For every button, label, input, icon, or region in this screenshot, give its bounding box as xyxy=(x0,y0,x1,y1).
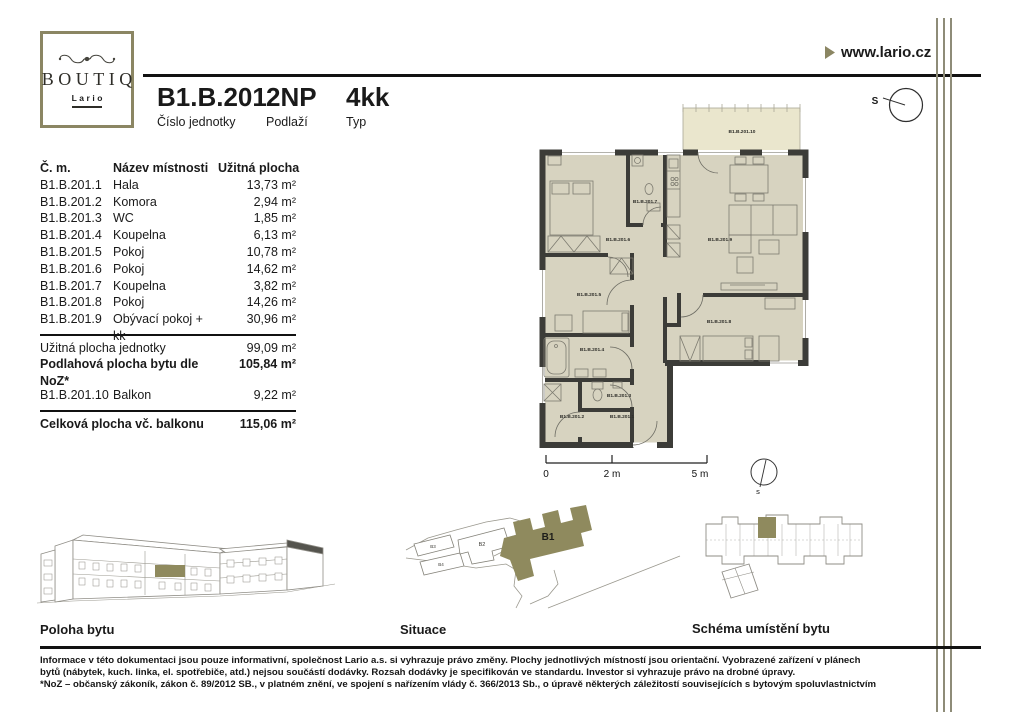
room-label-2: B1.B.201.2 xyxy=(560,414,585,420)
table-row: B1.B.201.8 Pokoj 14,26 m² xyxy=(40,294,296,311)
room-area: 13,73 m² xyxy=(218,177,296,194)
caption-situace: Situace xyxy=(400,622,446,637)
room-name: WC xyxy=(113,210,218,227)
room-name: Balkon xyxy=(113,387,218,404)
room-area: 6,13 m² xyxy=(218,227,296,244)
site-label-b4: B4 xyxy=(438,562,444,567)
accent-vline-3 xyxy=(950,18,952,712)
highlighted-unit-schema xyxy=(758,517,776,538)
footer-rule xyxy=(40,646,981,649)
website-arrow-icon xyxy=(824,45,836,60)
col-number: Č. m. xyxy=(40,160,113,177)
summary-label: Užitná plocha jednotky xyxy=(40,340,218,357)
room-area: 30,96 m² xyxy=(218,311,296,328)
building-b1 xyxy=(500,505,592,581)
room-name: Pokoj xyxy=(113,261,218,278)
room-label-balcony: B1.B.201.10 xyxy=(729,129,756,135)
scale-zero: 0 xyxy=(543,469,549,480)
total-label: Celková plocha vč. balkonu xyxy=(40,416,218,433)
footer-disclaimer: Informace v této dokumentaci jsou pouze … xyxy=(40,655,876,690)
type-label: Typ xyxy=(346,115,389,129)
building-location-drawing xyxy=(35,502,365,617)
scale-two: 2 m xyxy=(604,469,621,480)
floor-value: 2NP xyxy=(266,82,317,113)
logo-flourish-icon xyxy=(56,51,118,67)
floorplan-document-page: BOUTIQ Lario B1.B.201 Číslo jednotky 2NP… xyxy=(0,0,1024,724)
table-row: B1.B.201.1 Hala 13,73 m² xyxy=(40,177,296,194)
table-spacer xyxy=(40,373,296,387)
room-number: B1.B.201.1 xyxy=(40,177,113,194)
room-label-6: B1.B.201.6 xyxy=(606,237,631,243)
col-area: Užitná plocha xyxy=(218,160,296,177)
logo-underline xyxy=(72,106,102,108)
col-name: Název místnosti xyxy=(113,160,218,177)
room-label-5: B1.B.201.5 xyxy=(577,292,602,298)
accent-vline-2 xyxy=(943,18,945,712)
room-name: Hala xyxy=(113,177,218,194)
footer-line-3: *NoZ – občanský zákoník, zákon č. 89/201… xyxy=(40,679,876,691)
scale-bar: 0 2 m 5 m xyxy=(543,455,708,480)
room-area: 14,26 m² xyxy=(218,294,296,311)
footer-line-2: bytů (nábytek, kuch. linka, el. spotřebi… xyxy=(40,667,876,679)
room-number: B1.B.201.6 xyxy=(40,261,113,278)
compass-bottom-label: s xyxy=(756,487,760,496)
room-area: 2,94 m² xyxy=(218,194,296,211)
accent-vline-1 xyxy=(936,18,938,712)
room-number: B1.B.201.4 xyxy=(40,227,113,244)
room-name: Koupelna xyxy=(113,227,218,244)
room-name: Koupelna xyxy=(113,278,218,295)
room-area: 14,62 m² xyxy=(218,261,296,278)
unit-number: B1.B.201 xyxy=(157,82,267,113)
room-number: B1.B.201.3 xyxy=(40,210,113,227)
floor-block: 2NP Podlaží xyxy=(266,82,317,129)
summary-value: 99,09 m² xyxy=(218,340,296,357)
room-number: B1.B.201.7 xyxy=(40,278,113,295)
highlighted-unit xyxy=(155,565,185,577)
room-number: B1.B.201.9 xyxy=(40,311,113,328)
table-row: B1.B.201.3 WC 1,85 m² xyxy=(40,210,296,227)
scale-five: 5 m xyxy=(692,469,709,480)
unit-number-block: B1.B.201 Číslo jednotky xyxy=(157,82,267,129)
logo-subtitle: Lario xyxy=(69,93,105,103)
total-value: 115,06 m² xyxy=(218,416,296,433)
table-row: B1.B.201.5 Pokoj 10,78 m² xyxy=(40,244,296,261)
floor-plan: B1.B.201.6 B1.B.201.7 B1.B.201.9 B1.B.20… xyxy=(515,85,915,505)
table-row: B1.B.201.9 Obývací pokoj + kk 30,96 m² xyxy=(40,311,296,328)
summary-row-usable: Užitná plocha jednotky 99,09 m² xyxy=(40,340,296,357)
room-area: 1,85 m² xyxy=(218,210,296,227)
room-area-table: Č. m. Název místnosti Užitná plocha B1.B… xyxy=(40,160,296,432)
table-separator xyxy=(40,334,296,336)
room-name: Komora xyxy=(113,194,218,211)
total-row: Celková plocha vč. balkonu 115,06 m² xyxy=(40,416,296,433)
room-number: B1.B.201.5 xyxy=(40,244,113,261)
balcony-area xyxy=(683,104,800,153)
room-number: B1.B.201.10 xyxy=(40,387,113,404)
brand-logo: BOUTIQ Lario xyxy=(40,31,134,128)
room-number: B1.B.201.8 xyxy=(40,294,113,311)
summary-value: 105,84 m² xyxy=(218,356,296,373)
room-number: B1.B.201.2 xyxy=(40,194,113,211)
type-value: 4kk xyxy=(346,82,389,113)
room-name: Pokoj xyxy=(113,244,218,261)
table-row: B1.B.201.2 Komora 2,94 m² xyxy=(40,194,296,211)
room-area: 10,78 m² xyxy=(218,244,296,261)
website-link[interactable]: www.lario.cz xyxy=(841,44,931,61)
table-row: B1.B.201.7 Koupelna 3,82 m² xyxy=(40,278,296,295)
unit-number-label: Číslo jednotky xyxy=(157,115,267,129)
caption-poloha: Poloha bytu xyxy=(40,622,114,637)
table-separator xyxy=(40,410,296,412)
floor-label: Podlaží xyxy=(266,115,317,129)
room-label-4: B1.B.201.4 xyxy=(580,347,605,353)
site-plan-drawing: B1 B2 B3 B4 xyxy=(398,500,698,612)
site-label-b1: B1 xyxy=(542,532,555,543)
room-label-9: B1.B.201.9 xyxy=(708,237,733,243)
table-header-row: Č. m. Název místnosti Užitná plocha xyxy=(40,160,296,177)
site-label-b2: B2 xyxy=(479,542,486,548)
room-label-3: B1.B.201.3 xyxy=(607,393,632,399)
site-label-b3: B3 xyxy=(430,544,436,549)
caption-schema: Schéma umístění bytu xyxy=(692,621,830,636)
plan-compass-icon: s xyxy=(751,459,777,496)
room-area: 3,82 m² xyxy=(218,278,296,295)
unit-schema-drawing xyxy=(692,502,877,614)
table-row: B1.B.201.4 Koupelna 6,13 m² xyxy=(40,227,296,244)
room-area: 9,22 m² xyxy=(218,387,296,404)
summary-label: Podlahová plocha bytu dle NoZ* xyxy=(40,356,218,373)
balcony-row: B1.B.201.10 Balkon 9,22 m² xyxy=(40,387,296,404)
logo-title: BOUTIQ xyxy=(37,69,137,90)
footer-line-1: Informace v této dokumentaci jsou pouze … xyxy=(40,655,876,667)
header-rule xyxy=(143,74,981,77)
room-label-8: B1.B.201.8 xyxy=(707,319,732,325)
room-name: Pokoj xyxy=(113,294,218,311)
summary-row-noz: Podlahová plocha bytu dle NoZ* 105,84 m² xyxy=(40,356,296,373)
type-block: 4kk Typ xyxy=(346,82,389,129)
room-name: Obývací pokoj + kk xyxy=(113,311,218,328)
table-row: B1.B.201.6 Pokoj 14,62 m² xyxy=(40,261,296,278)
room-label-1: B1.B.201.1 xyxy=(610,414,635,420)
room-label-7: B1.B.201.7 xyxy=(633,199,658,205)
